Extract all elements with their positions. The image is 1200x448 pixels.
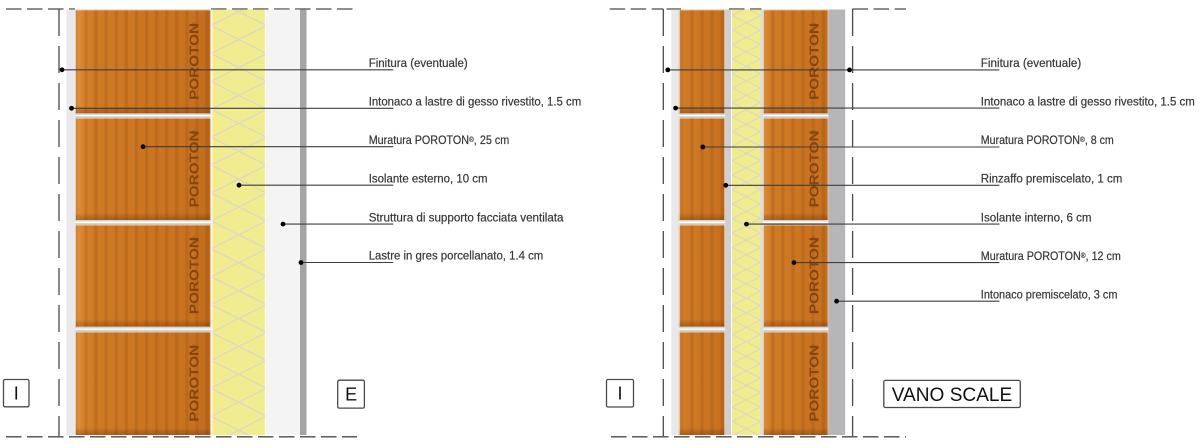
svg-text:®: ®: [191, 343, 196, 351]
svg-text:Muratura POROTON®, 12 cm: Muratura POROTON®, 12 cm: [981, 249, 1121, 263]
svg-text:Intonaco a lastre di gesso riv: Intonaco a lastre di gesso rivestito, 1.…: [369, 95, 582, 109]
svg-text:Muratura POROTON®, 25 cm: Muratura POROTON®, 25 cm: [369, 133, 510, 147]
svg-text:®: ®: [811, 343, 816, 351]
svg-text:POROTON: POROTON: [188, 345, 202, 422]
svg-text:I: I: [14, 384, 19, 404]
svg-text:®: ®: [811, 129, 816, 137]
svg-text:Struttura di supporto facciata: Struttura di supporto facciata ventilata: [369, 210, 564, 224]
svg-text:Muratura POROTON®, 8 cm: Muratura POROTON®, 8 cm: [981, 133, 1114, 147]
svg-text:Intonaco premiscelato, 3 cm: Intonaco premiscelato, 3 cm: [981, 287, 1118, 301]
svg-text:POROTON: POROTON: [188, 237, 202, 314]
svg-text:VANO SCALE: VANO SCALE: [892, 384, 1013, 406]
svg-text:Finitura (eventuale): Finitura (eventuale): [369, 56, 468, 70]
svg-text:Lastre in gres porcellanato, 1: Lastre in gres porcellanato, 1.4 cm: [369, 249, 544, 263]
svg-text:Isolante esterno, 10 cm: Isolante esterno, 10 cm: [369, 171, 488, 185]
svg-text:Intonaco a lastre di gesso riv: Intonaco a lastre di gesso rivestito, 1.…: [981, 94, 1195, 108]
svg-text:POROTON: POROTON: [188, 130, 202, 207]
svg-text:®: ®: [811, 236, 816, 244]
svg-text:Rinzaffo premiscelato, 1 cm: Rinzaffo premiscelato, 1 cm: [981, 172, 1123, 186]
svg-text:E: E: [345, 385, 357, 405]
svg-text:POROTON: POROTON: [188, 23, 202, 100]
svg-text:®: ®: [191, 236, 196, 244]
svg-text:I: I: [617, 384, 622, 404]
svg-text:POROTON: POROTON: [808, 345, 822, 422]
svg-text:®: ®: [191, 21, 196, 29]
svg-text:POROTON: POROTON: [808, 237, 822, 314]
svg-text:POROTON: POROTON: [808, 23, 822, 100]
svg-text:Isolante interno, 6 cm: Isolante interno, 6 cm: [981, 210, 1092, 224]
svg-text:®: ®: [811, 21, 816, 29]
svg-text:Finitura (eventuale): Finitura (eventuale): [981, 56, 1081, 70]
svg-text:POROTON: POROTON: [808, 130, 822, 207]
svg-text:®: ®: [191, 129, 196, 137]
